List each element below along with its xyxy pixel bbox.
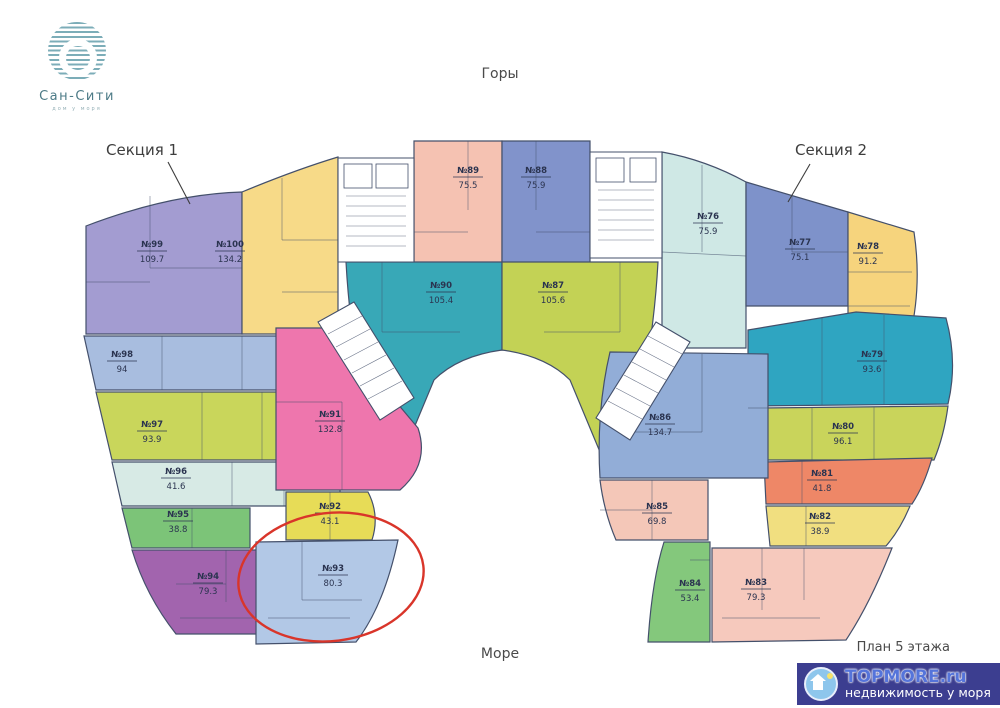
apartment-83-number: №83 [745,578,767,588]
apartment-87-area: 105.6 [541,296,565,306]
apartment-77: №7775.1 [746,182,848,306]
apartment-81-number: №81 [811,469,833,479]
section-1-leader-line [168,162,190,204]
apartment-100-region[interactable] [242,157,338,334]
apartment-93: №9380.3 [256,540,398,644]
apartment-95-area: 38.8 [169,525,188,535]
apartment-90-area: 105.4 [429,296,453,306]
apartment-92-number: №92 [319,502,341,512]
apartment-94: №9479.3 [132,550,272,634]
stair-core-left [338,158,414,262]
floorplan-page: Сан-Сити дом у моря Горы Море Секция 1 С… [0,0,1000,708]
apartment-96-number: №96 [165,467,187,477]
apartment-78-number: №78 [857,242,879,252]
apartment-88-area: 75.9 [527,181,546,191]
apartment-84-number: №84 [679,579,701,589]
apartment-80-area: 96.1 [834,437,853,447]
apartment-85-number: №85 [646,502,668,512]
apartment-97-area: 93.9 [143,435,162,445]
topmore-subtitle: недвижимость у моря [845,686,991,700]
apartment-80: №8096.1 [762,406,948,460]
apartment-79-number: №79 [861,350,883,360]
apartment-100-area: 134.2 [218,255,242,265]
apartment-93-region[interactable] [256,540,398,644]
stair-core-right [590,152,662,258]
apartment-80-number: №80 [832,422,854,432]
apartment-81-region[interactable] [764,458,932,504]
apartment-94-area: 79.3 [199,587,218,597]
apartment-92: №9243.1 [286,492,375,540]
floor-plan-caption: План 5 этажа [760,640,950,655]
apartment-91-number: №91 [319,410,341,420]
apartment-98-area: 94 [117,365,128,375]
apartment-93-area: 80.3 [324,579,343,589]
apartment-100-number: №100 [216,240,244,250]
apartment-93-number: №93 [322,564,344,574]
apartment-81-area: 41.8 [813,484,832,494]
stair-core-right-outline [590,152,662,258]
apartment-84: №8453.4 [648,542,710,642]
apartment-95: №9538.8 [122,508,250,548]
apartment-83: №8379.3 [712,548,892,642]
apartment-82: №8238.9 [766,506,910,546]
apartment-76-area: 75.9 [699,227,718,237]
apartment-88-number: №88 [525,166,547,176]
apartment-92-area: 43.1 [321,517,340,527]
apartment-91-area: 132.8 [318,425,342,435]
house-roof-icon [810,674,826,681]
apartment-89-number: №89 [457,166,479,176]
apartment-79-region[interactable] [748,312,953,406]
apartment-82-region[interactable] [766,506,910,546]
apartment-99-area: 109.7 [140,255,164,265]
apartment-85: №8569.8 [600,480,708,540]
apartment-76: №7675.9 [662,152,746,348]
topmore-title: TOPMORE.ru [845,668,991,686]
apartment-86-area: 134.7 [648,428,672,438]
apartment-86-number: №86 [649,413,671,423]
apartment-82-number: №82 [809,512,831,522]
topmore-watermark: TOPMORE.ru недвижимость у моря [797,663,1000,705]
apartment-77-number: №77 [789,238,811,248]
apartment-83-region[interactable] [712,548,892,642]
apartment-89-area: 75.5 [459,181,478,191]
apartment-78-area: 91.2 [859,257,878,267]
house-icon [813,681,823,690]
apartment-79-area: 93.6 [863,365,882,375]
apartment-96-area: 41.6 [167,482,186,492]
apartment-95-number: №95 [167,510,189,520]
apartment-99-number: №99 [141,240,163,250]
apartment-83-area: 79.3 [747,593,766,603]
apartment-98-number: №98 [111,350,133,360]
sun-icon [827,673,833,679]
apartment-92-region[interactable] [286,492,375,540]
floorplan: №99109.7№100134.2№8975.5№8875.9№90105.4№… [0,0,1000,708]
topmore-logo-icon [804,667,838,701]
apartment-76-number: №76 [697,212,719,222]
apartment-94-number: №94 [197,572,219,582]
apartment-85-area: 69.8 [648,517,667,527]
apartment-76-region[interactable] [662,152,746,348]
apartment-84-area: 53.4 [681,594,700,604]
apartment-82-area: 38.9 [811,527,830,537]
apartment-97-number: №97 [141,420,163,430]
apartment-90-number: №90 [430,281,452,291]
apartment-81: №8141.8 [764,458,932,504]
apartment-77-area: 75.1 [791,253,810,263]
apartment-84-region[interactable] [648,542,710,642]
apartment-79: №7993.6 [748,312,953,406]
section-2-leader-line [788,164,810,202]
apartment-87-number: №87 [542,281,564,291]
